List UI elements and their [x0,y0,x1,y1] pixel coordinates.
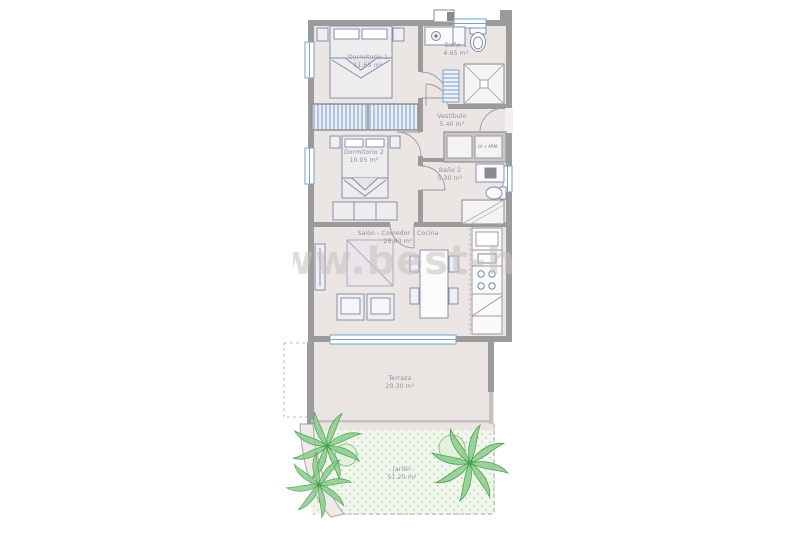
room-label-terraza: Terraza 20.30 m² [386,375,415,391]
nightstand [393,28,404,41]
nightstand [330,136,340,148]
room-label-dormitorio-2: Dormitorio 2 10.05 m² [344,149,384,165]
toilet-icon [470,28,486,52]
rug [347,240,393,286]
shower [462,200,504,224]
armchair [367,294,394,320]
wardrobe [312,104,418,130]
sink [478,254,496,263]
room-label-vestibulo: Vestíbulo 5.40 m² [437,113,466,129]
floorplan-drawing [0,0,800,540]
window-dorm2 [305,148,314,184]
room-label-dormitorio-1: Dormitorio 1 11.65 m² [348,54,388,70]
terrace-glass-door [330,335,456,344]
room-label-bano-1: Baño 1 4.65 m² [444,42,469,58]
bed-double [342,136,388,198]
window-dorm1 [305,42,314,78]
nightstand [317,28,328,41]
nightstand [390,136,400,148]
closet-label: LV + ARM. [478,145,499,150]
kitchen-counter [470,228,502,334]
floorplan-canvas: Dormitorio 1 11.65 m² Baño 1 4.65 m² Ves… [0,0,800,540]
fridge [476,232,498,246]
towel-radiator [443,70,459,102]
vanity-sink [476,164,504,182]
room-label-salon: Salón - Comedor - Cocina 26.80 m² [357,230,438,246]
shower [464,64,504,104]
room-label-jardin: Jardín 51.20 m² [388,466,417,482]
toilet-icon [486,187,506,199]
armchair [337,294,364,320]
bench [333,202,397,220]
tv-unit [315,244,325,290]
room-label-bano-2: Baño 2 5.30 m² [438,167,463,183]
